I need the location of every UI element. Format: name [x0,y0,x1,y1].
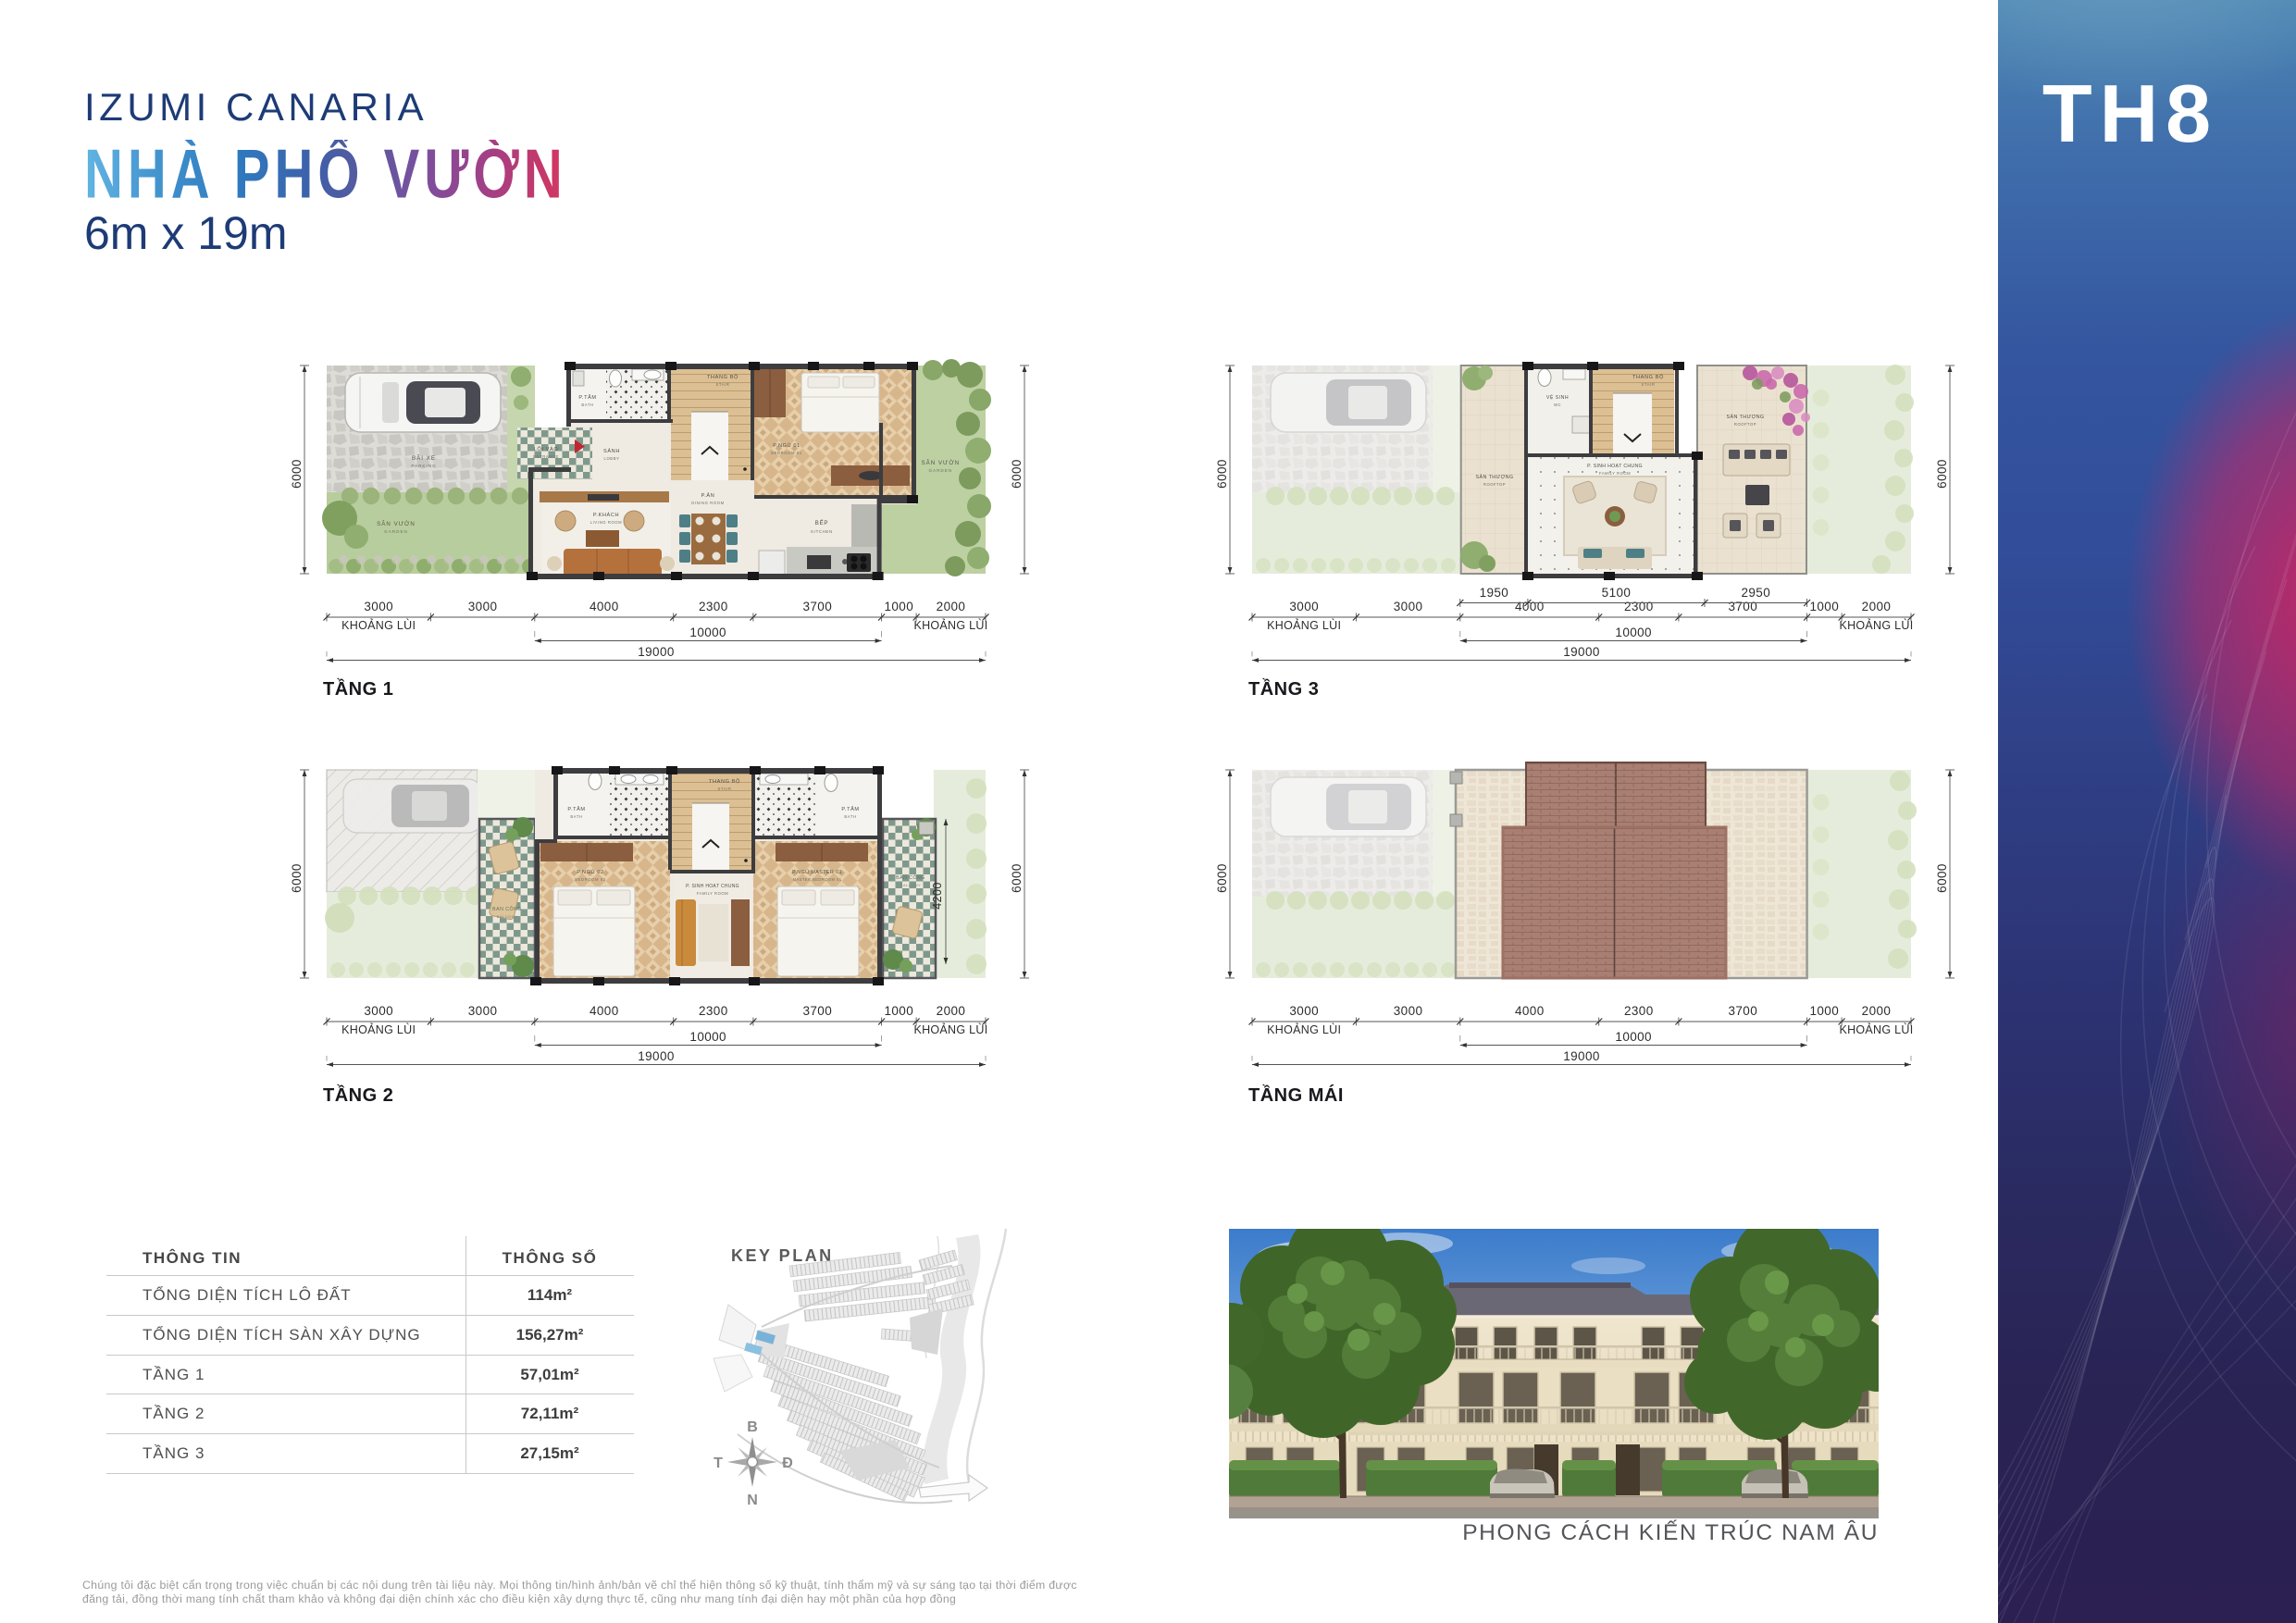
svg-text:1000: 1000 [884,600,913,613]
svg-text:P.TẮM: P.TẮM [567,805,585,812]
svg-text:1000: 1000 [884,1004,913,1018]
svg-text:T: T [714,1456,723,1471]
svg-text:LIVING ROOM: LIVING ROOM [590,520,623,525]
svg-text:2300: 2300 [699,1004,728,1018]
svg-text:KHOẢNG LÙI: KHOẢNG LÙI [913,1022,987,1036]
svg-text:P.TẮM: P.TẮM [578,393,596,401]
svg-text:19000: 19000 [638,645,675,659]
svg-text:3700: 3700 [802,1004,832,1018]
svg-text:TẦNG MÁI: TẦNG MÁI [1248,1084,1344,1106]
svg-text:THANG BỘ: THANG BỘ [709,778,740,785]
svg-text:3000: 3000 [364,600,393,613]
svg-text:6000: 6000 [1215,459,1229,489]
svg-text:LỐI VÀO: LỐI VÀO [534,446,559,452]
svg-text:THANG BỘ: THANG BỘ [707,374,738,380]
svg-text:BALCONY: BALCONY [900,883,922,887]
svg-text:1000: 1000 [1809,600,1839,613]
svg-text:BÃI XE: BÃI XE [412,455,436,462]
svg-text:P.KHÁCH: P.KHÁCH [593,512,619,518]
svg-text:10000: 10000 [689,1030,726,1044]
svg-text:N: N [747,1493,758,1508]
svg-text:GARDEN: GARDEN [384,529,408,534]
svg-text:3700: 3700 [802,600,832,613]
svg-text:KHOẢNG LÙI: KHOẢNG LÙI [1839,618,1913,632]
svg-text:SẢNH: SẢNH [603,448,620,454]
svg-text:PARKING: PARKING [411,464,436,468]
svg-text:2000: 2000 [1862,600,1892,613]
svg-text:SÂN THƯỢNG: SÂN THƯỢNG [1727,414,1765,420]
svg-text:P.NGỦ 02: P.NGỦ 02 [577,869,604,875]
svg-text:ROOFTOP: ROOFTOP [1483,482,1506,487]
svg-text:TẦNG 2: TẦNG 2 [323,1084,393,1106]
svg-text:BAN CÔNG: BAN CÔNG [492,906,522,912]
svg-text:4000: 4000 [590,600,619,613]
svg-text:19000: 19000 [1563,1049,1600,1063]
svg-text:BALCONY: BALCONY [497,914,518,919]
svg-text:4000: 4000 [1515,1004,1545,1018]
svg-text:KITCHEN: KITCHEN [811,529,832,534]
svg-text:LOBBY: LOBBY [604,456,620,461]
svg-text:3000: 3000 [1289,600,1319,613]
svg-text:BAN CÔNG: BAN CÔNG [896,874,925,881]
svg-text:3000: 3000 [468,600,498,613]
svg-text:B: B [747,1419,758,1435]
svg-text:2000: 2000 [937,1004,966,1018]
svg-text:3000: 3000 [468,1004,498,1018]
svg-text:ROOFTOP: ROOFTOP [1734,422,1756,427]
svg-text:2300: 2300 [699,600,728,613]
svg-text:THANG BỘ: THANG BỘ [1632,374,1664,380]
svg-text:KHOẢNG LÙI: KHOẢNG LÙI [1839,1022,1913,1036]
svg-text:10000: 10000 [1615,626,1652,639]
svg-text:Đ: Đ [782,1456,793,1471]
svg-text:3700: 3700 [1728,600,1757,613]
svg-text:1000: 1000 [1809,1004,1839,1018]
svg-text:MASTER BEDROOM 01: MASTER BEDROOM 01 [793,877,842,882]
svg-text:4200: 4200 [931,882,944,909]
svg-text:KHOẢNG LÙI: KHOẢNG LÙI [341,1022,416,1036]
svg-text:2000: 2000 [937,600,966,613]
svg-text:P.NGỦ MASTER 01: P.NGỦ MASTER 01 [792,869,842,875]
svg-text:STAIR: STAIR [715,382,729,387]
svg-text:3000: 3000 [364,1004,393,1018]
svg-text:2950: 2950 [1741,586,1770,600]
svg-text:10000: 10000 [1615,1030,1652,1044]
svg-text:6000: 6000 [1935,459,1949,489]
svg-text:6000: 6000 [1010,863,1024,893]
svg-text:WC: WC [1554,403,1561,407]
svg-text:BATH: BATH [581,403,593,407]
svg-text:KHOẢNG LÙI: KHOẢNG LÙI [1267,1022,1341,1036]
svg-text:10000: 10000 [689,626,726,639]
svg-text:4000: 4000 [590,1004,619,1018]
svg-text:STAIR: STAIR [717,787,731,791]
svg-text:6000: 6000 [1010,459,1024,489]
svg-text:DINING ROOM: DINING ROOM [691,501,724,505]
svg-text:KHOẢNG LÙI: KHOẢNG LÙI [913,618,987,632]
svg-text:5100: 5100 [1602,586,1632,600]
svg-text:FAMILY ROOM: FAMILY ROOM [1599,471,1631,476]
svg-text:6000: 6000 [1215,863,1229,893]
svg-text:TẦNG 3: TẦNG 3 [1248,678,1319,700]
svg-text:BẾP: BẾP [815,520,828,527]
svg-text:P.NGỦ 01: P.NGỦ 01 [773,442,800,449]
svg-text:3000: 3000 [1394,1004,1423,1018]
svg-text:2300: 2300 [1624,600,1654,613]
svg-text:ENTRANCE: ENTRANCE [533,454,559,459]
svg-text:SÂN VƯỜN: SÂN VƯỜN [921,460,960,466]
svg-text:STAIR: STAIR [1641,382,1655,387]
svg-text:19000: 19000 [1563,645,1600,659]
svg-text:6000: 6000 [290,459,304,489]
svg-text:VỆ SINH: VỆ SINH [1546,393,1569,401]
svg-text:P.ĂN: P.ĂN [701,492,715,499]
svg-text:SÂN VƯỜN: SÂN VƯỜN [377,521,416,527]
svg-text:BATH: BATH [844,814,856,819]
svg-text:3000: 3000 [1289,1004,1319,1018]
svg-text:2000: 2000 [1862,1004,1892,1018]
svg-text:P. SINH HOẠT CHUNG: P. SINH HOẠT CHUNG [1587,464,1643,469]
svg-text:BATH: BATH [570,814,582,819]
svg-text:2300: 2300 [1624,1004,1654,1018]
svg-text:3000: 3000 [1394,600,1423,613]
svg-text:6000: 6000 [1935,863,1949,893]
svg-text:P. SINH HOẠT CHUNG: P. SINH HOẠT CHUNG [686,884,739,889]
svg-text:KHOẢNG LÙI: KHOẢNG LÙI [1267,618,1341,632]
svg-text:TẦNG 1: TẦNG 1 [323,678,393,700]
svg-text:GARDEN: GARDEN [928,468,952,473]
svg-text:FAMILY ROOM: FAMILY ROOM [697,891,728,896]
svg-text:BEDROOM 02: BEDROOM 02 [575,877,606,882]
svg-text:1950: 1950 [1480,586,1509,600]
svg-text:KHOẢNG LÙI: KHOẢNG LÙI [341,618,416,632]
svg-text:P.TẮM: P.TẮM [841,805,859,812]
svg-text:3700: 3700 [1728,1004,1757,1018]
svg-text:6000: 6000 [290,863,304,893]
svg-text:19000: 19000 [638,1049,675,1063]
svg-text:SÂN THƯỢNG: SÂN THƯỢNG [1476,474,1514,480]
svg-text:BEDROOM 01: BEDROOM 01 [771,451,802,455]
